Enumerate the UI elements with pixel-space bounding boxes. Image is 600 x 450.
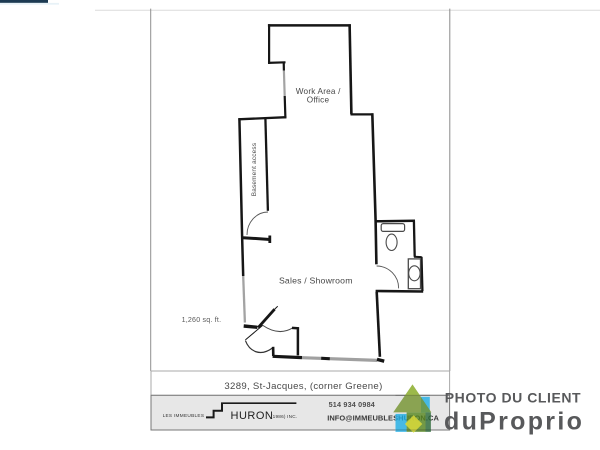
svg-text:3289, St-Jacques, (corner Gree: 3289, St-Jacques, (corner Greene) bbox=[224, 381, 382, 392]
svg-text:514 934 0984: 514 934 0984 bbox=[329, 400, 375, 409]
svg-text:HURON: HURON bbox=[231, 410, 274, 422]
svg-text:Basement access: Basement access bbox=[251, 143, 258, 196]
svg-text:duProprio: duProprio bbox=[444, 407, 584, 435]
svg-text:Office: Office bbox=[307, 95, 330, 104]
svg-text:(1986) INC.: (1986) INC. bbox=[271, 414, 297, 419]
svg-text:Sales / Showroom: Sales / Showroom bbox=[279, 275, 353, 285]
svg-text:PHOTO DU CLIENT: PHOTO DU CLIENT bbox=[445, 390, 581, 406]
svg-text:1,260 sq. ft.: 1,260 sq. ft. bbox=[182, 316, 222, 324]
svg-text:LES IMMEUBLES: LES IMMEUBLES bbox=[163, 413, 205, 418]
